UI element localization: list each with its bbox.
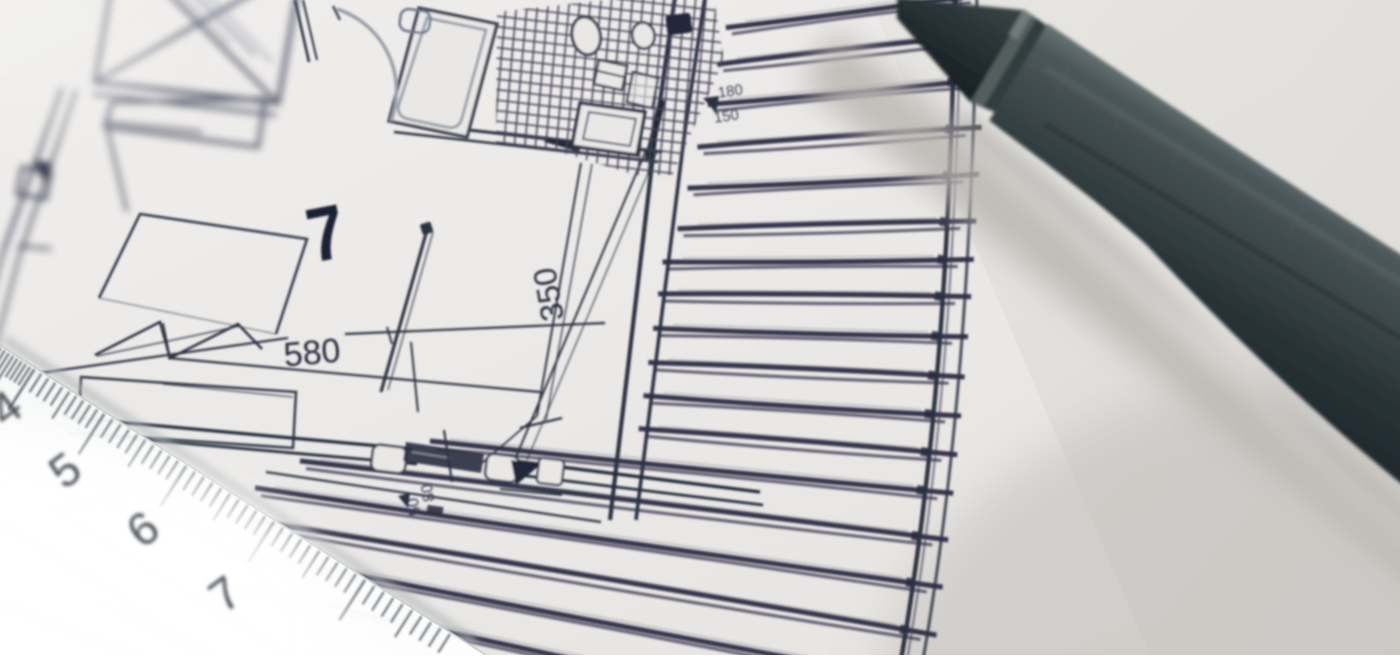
svg-text:580: 580 (282, 332, 342, 375)
svg-text:180: 180 (717, 81, 744, 101)
svg-text:150: 150 (713, 106, 740, 126)
